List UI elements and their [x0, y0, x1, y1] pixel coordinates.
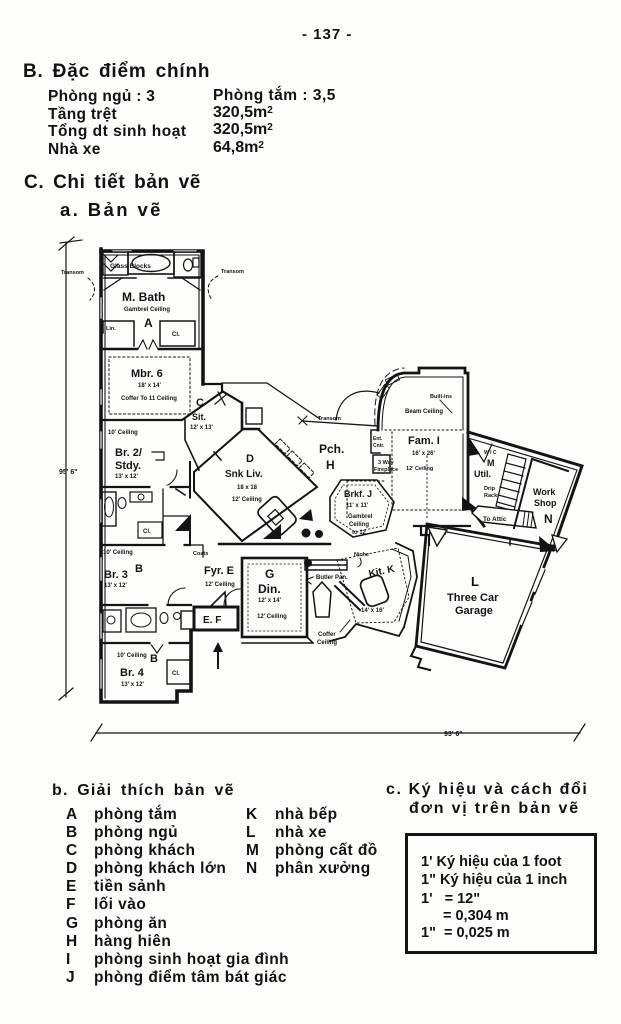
- svg-text:13' x 12': 13' x 12': [104, 583, 127, 589]
- svg-text:11' x 11': 11' x 11': [346, 503, 369, 509]
- svg-text:Garage: Garage: [455, 605, 493, 617]
- svg-text:Ceiling: Ceiling: [349, 522, 369, 528]
- svg-text:Drip: Drip: [484, 486, 496, 492]
- svg-text:W I C: W I C: [484, 450, 497, 456]
- svg-text:M. Bath: M. Bath: [122, 290, 165, 304]
- svg-text:Cl.: Cl.: [143, 529, 151, 535]
- svg-text:3 Way: 3 Way: [378, 460, 395, 466]
- svg-text:Ceiling: Ceiling: [317, 640, 337, 646]
- svg-text:Br. 4: Br. 4: [120, 667, 145, 679]
- svg-text:Mbr. 6: Mbr. 6: [131, 368, 163, 380]
- svg-text:12' Ceiling: 12' Ceiling: [257, 614, 287, 620]
- svg-text:13' x 12': 13' x 12': [121, 682, 144, 688]
- svg-text:Shop: Shop: [534, 498, 557, 508]
- svg-text:Brkf. J: Brkf. J: [344, 489, 372, 499]
- svg-text:Gambrel Ceiling: Gambrel Ceiling: [124, 307, 170, 313]
- svg-text:Cl.: Cl.: [172, 332, 180, 338]
- svg-text:18' x 14': 18' x 14': [138, 383, 161, 389]
- svg-text:Fireplace: Fireplace: [374, 467, 398, 473]
- svg-text:B: B: [150, 653, 158, 665]
- svg-text:D: D: [246, 453, 254, 465]
- svg-text:to 12: to 12: [352, 530, 367, 536]
- svg-text:10' Ceiling: 10' Ceiling: [108, 430, 138, 436]
- svg-text:12' x 13': 12' x 13': [190, 425, 213, 431]
- svg-text:B: B: [135, 563, 143, 575]
- svg-text:E. F: E. F: [203, 615, 221, 626]
- svg-text:A: A: [144, 316, 153, 330]
- svg-text:Three Car: Three Car: [447, 592, 499, 604]
- svg-text:Fyr. E: Fyr. E: [204, 565, 234, 577]
- svg-text:Transom: Transom: [318, 416, 341, 422]
- svg-text:Snk Liv.: Snk Liv.: [225, 469, 263, 480]
- svg-text:M: M: [487, 458, 495, 468]
- svg-text:Rack: Rack: [484, 493, 498, 499]
- svg-text:Fam. I: Fam. I: [408, 435, 440, 447]
- svg-text:Work: Work: [533, 487, 556, 497]
- svg-text:12' x 14': 12' x 14': [258, 598, 281, 604]
- svg-text:Stdy.: Stdy.: [115, 460, 141, 472]
- svg-text:Ent.: Ent.: [373, 436, 383, 442]
- svg-text:L: L: [471, 574, 479, 589]
- svg-text:Coffer: Coffer: [318, 632, 336, 638]
- svg-text:Transom: Transom: [221, 269, 244, 275]
- svg-text:12' Ceiling: 12' Ceiling: [406, 466, 433, 472]
- svg-text:Util.: Util.: [474, 469, 491, 479]
- svg-text:Sit.: Sit.: [192, 412, 206, 422]
- svg-text:Din.: Din.: [258, 582, 281, 596]
- svg-text:Built-ins: Built-ins: [430, 394, 452, 400]
- svg-text:10' Ceiling: 10' Ceiling: [103, 550, 133, 556]
- svg-text:C: C: [196, 397, 204, 409]
- svg-text:10' Ceiling: 10' Ceiling: [117, 653, 147, 659]
- svg-text:H: H: [326, 458, 335, 472]
- svg-text:18 x 18: 18 x 18: [237, 485, 258, 491]
- svg-text:Cl.: Cl.: [172, 671, 180, 677]
- svg-text:Lin.: Lin.: [106, 326, 116, 332]
- svg-text:12' Ceiling: 12' Ceiling: [205, 582, 235, 588]
- svg-text:G: G: [265, 567, 274, 581]
- svg-text:16' x 26': 16' x 26': [412, 451, 435, 457]
- svg-text:14' x 16': 14' x 16': [361, 608, 384, 614]
- svg-text:Beam Ceiling: Beam Ceiling: [405, 409, 443, 415]
- svg-text:To Attic: To Attic: [483, 516, 507, 523]
- svg-text:Cntr.: Cntr.: [373, 443, 385, 449]
- svg-text:12' Ceiling: 12' Ceiling: [232, 497, 262, 503]
- svg-text:Br. 3: Br. 3: [104, 569, 128, 581]
- svg-text:Gambrel: Gambrel: [348, 514, 373, 520]
- svg-text:Transom: Transom: [61, 270, 84, 276]
- svg-text:13' x 12': 13' x 12': [115, 474, 138, 480]
- svg-text:95' 6": 95' 6": [59, 469, 78, 476]
- svg-text:93' 6": 93' 6": [444, 731, 463, 738]
- svg-text:N: N: [544, 512, 553, 526]
- svg-text:Coats: Coats: [193, 551, 208, 557]
- svg-text:Br. 2/: Br. 2/: [115, 447, 142, 459]
- svg-text:Pch.: Pch.: [319, 442, 344, 456]
- svg-text:Coffer To 11 Ceiling: Coffer To 11 Ceiling: [121, 396, 177, 402]
